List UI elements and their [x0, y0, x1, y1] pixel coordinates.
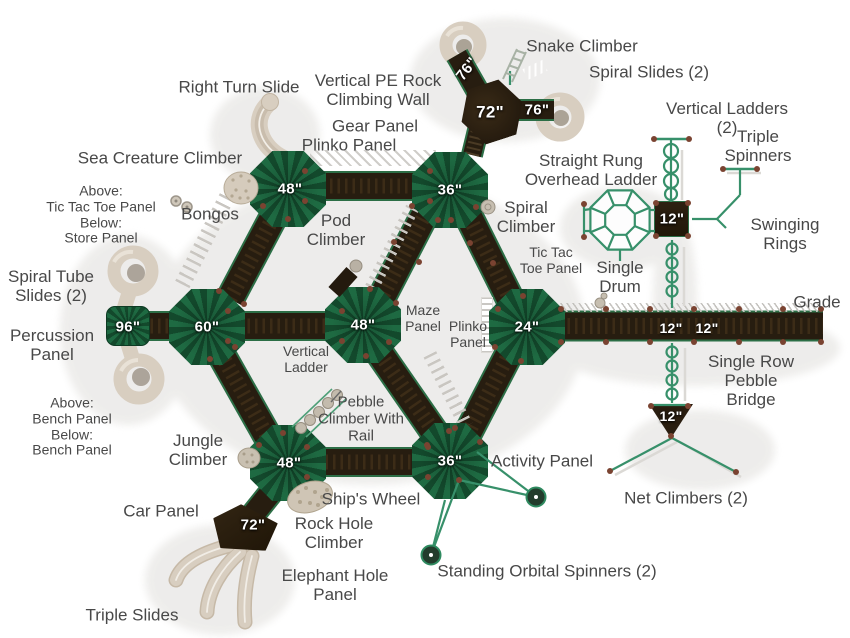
deck-height-label-12in-15: 12" [659, 409, 682, 423]
deck-height-label-48in-3: 48" [278, 182, 303, 197]
label-triple-spinners: Triple Spinners [712, 127, 804, 165]
label-single-drum: Single Drum [596, 258, 643, 296]
label-net-climbers-2: Net Climbers (2) [624, 488, 748, 507]
label-pod-climber: Pod Climber [307, 211, 366, 249]
label-right-turn-slide: Right Turn Slide [179, 77, 300, 96]
deck-height-label-12in-10: 12" [659, 321, 682, 335]
label-straight-rung-overhead-ladder: Straight Rung Overhead Ladder [525, 151, 657, 189]
label-rock-hole-climber: Rock Hole Climber [295, 514, 373, 552]
label-percussion-panel: Percussion Panel [10, 326, 94, 364]
deck-height-label-76in-2: 76" [525, 103, 550, 118]
label-ship-s-wheel: Ship's Wheel [322, 489, 421, 508]
label-swinging-rings: Swinging Rings [751, 215, 820, 253]
label-above-bench-panel-below-bench-panel: Above: Bench Panel Below: Bench Panel [32, 395, 111, 458]
deck-height-label-36in-4: 36" [438, 183, 463, 198]
deck-height-label-48in-12: 48" [277, 456, 302, 471]
label-sea-creature-climber: Sea Creature Climber [78, 148, 242, 167]
label-grade: Grade [793, 292, 840, 311]
label-maze-panel: Maze Panel [405, 303, 441, 335]
label-snake-climber: Snake Climber [526, 36, 638, 55]
label-single-row-pebble-bridge: Single Row Pebble Bridge [702, 352, 801, 410]
label-elephant-hole-panel: Elephant Hole Panel [282, 566, 389, 604]
label-vertical-ladder: Vertical Ladder [283, 344, 329, 376]
label-standing-orbital-spinners-2: Standing Orbital Spinners (2) [437, 561, 656, 580]
deck-height-label-76in-0: 76" [453, 55, 480, 84]
label-plinko-panel: Plinko Panel [302, 135, 397, 154]
label-car-panel: Car Panel [123, 501, 199, 520]
deck-height-label-36in-13: 36" [438, 454, 463, 469]
label-spiral-climber: Spiral Climber [497, 198, 556, 236]
deck-height-label-24in-9: 24" [515, 320, 540, 335]
playground-diagram: Snake ClimberSpiral Slides (2)Right Turn… [0, 0, 850, 638]
deck-height-label-96in-6: 96" [116, 320, 141, 335]
label-jungle-climber: Jungle Climber [169, 431, 228, 469]
label-triple-slides: Triple Slides [86, 605, 179, 624]
label-above-tic-tac-toe-panel-below-store-panel: Above: Tic Tac Toe Panel Below: Store Pa… [46, 183, 155, 246]
deck-height-label-72in-14: 72" [241, 518, 266, 533]
labels-layer: Snake ClimberSpiral Slides (2)Right Turn… [0, 0, 850, 638]
deck-height-label-60in-7: 60" [195, 320, 220, 335]
label-vertical-pe-rock-climbing-wall: Vertical PE Rock Climbing Wall [315, 71, 442, 109]
deck-height-label-48in-8: 48" [351, 318, 376, 333]
label-pebble-climber-with-rail: Pebble Climber With Rail [318, 395, 404, 446]
label-spiral-tube-slides-2: Spiral Tube Slides (2) [8, 267, 94, 305]
label-activity-panel: Activity Panel [491, 451, 593, 470]
deck-height-label-12in-11: 12" [695, 321, 718, 335]
label-gear-panel: Gear Panel [332, 116, 418, 135]
label-spiral-slides-2: Spiral Slides (2) [589, 62, 709, 81]
label-plinko-panel: Plinko Panel [449, 319, 487, 351]
deck-height-label-72in-1: 72" [476, 104, 504, 121]
label-tic-tac-toe-panel: Tic Tac Toe Panel [520, 245, 582, 277]
deck-height-label-12in-5: 12" [660, 212, 685, 227]
label-bongos: Bongos [181, 204, 239, 223]
